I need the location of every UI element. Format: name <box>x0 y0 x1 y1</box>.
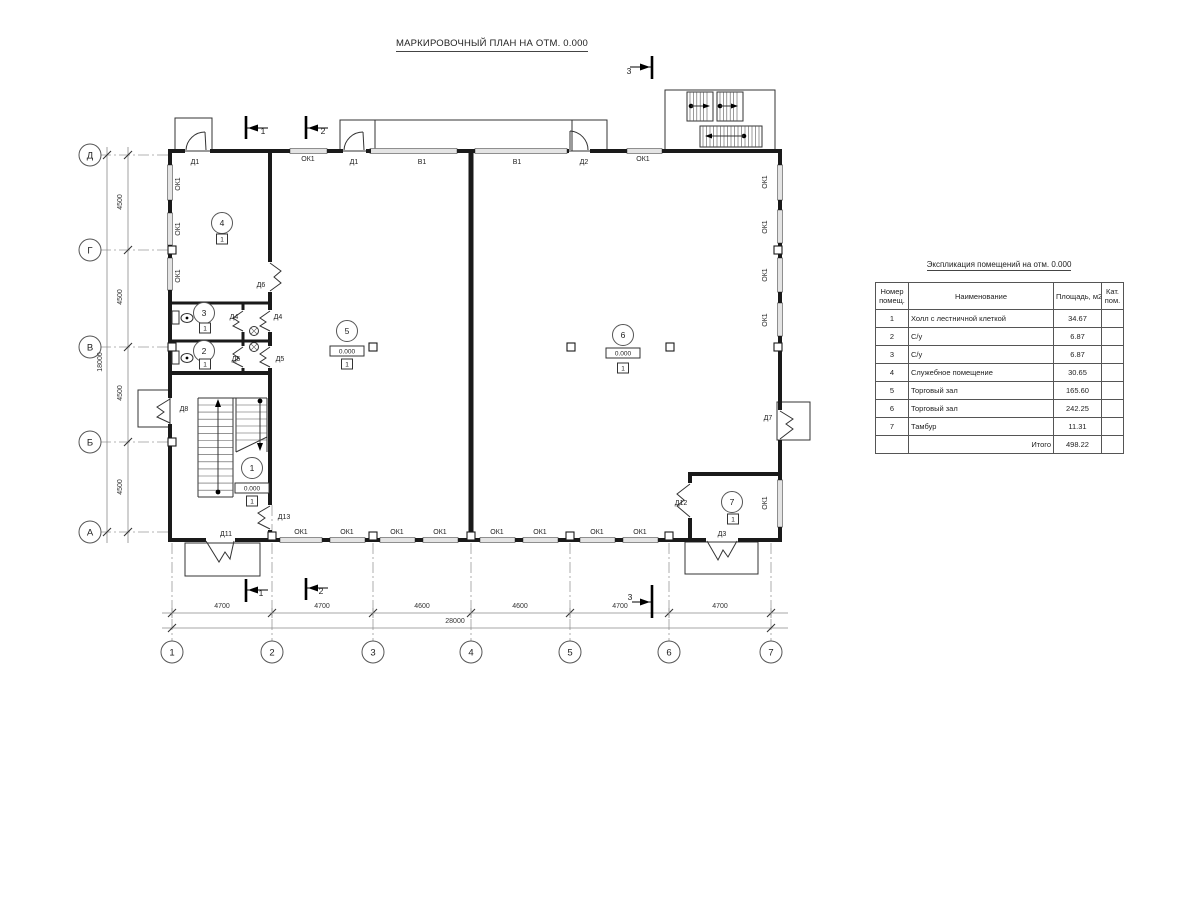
floor-marker: 1 <box>220 237 224 244</box>
spec-cell-name: Служебное помещение <box>909 364 1054 382</box>
dim-value: 4500 <box>117 385 124 401</box>
opening-label: ОК1 <box>294 529 308 536</box>
section-number: 2 <box>321 126 326 136</box>
opening-label: Д5 <box>232 356 241 363</box>
elevation-value: 0.000 <box>615 351 632 358</box>
section-number: 3 <box>627 66 632 76</box>
section-number: 1 <box>259 588 264 598</box>
opening-label: Д6 <box>257 282 266 289</box>
specification-table: Номерпомещ. Наименование Площадь, м2 Кат… <box>875 282 1124 454</box>
spec-row: 1Холл с лестничной клеткой34.67 <box>876 310 1124 328</box>
opening-label: ОК1 <box>175 177 182 191</box>
spec-cell-num: 6 <box>876 400 909 418</box>
opening-label: ОК1 <box>340 529 354 536</box>
spec-cell-num: 4 <box>876 364 909 382</box>
floor-marker: 1 <box>345 362 349 369</box>
exterior-stair <box>665 90 775 150</box>
spec-row: 6Торговый зал242.25 <box>876 400 1124 418</box>
spec-cell-area: 6.87 <box>1054 328 1102 346</box>
room-number: 2 <box>202 346 207 356</box>
elevation-value: 0.000 <box>244 486 261 493</box>
opening-label: Д5 <box>276 356 285 363</box>
columns <box>168 246 782 540</box>
column <box>369 532 377 540</box>
opening-label: ОК1 <box>590 529 604 536</box>
porches <box>138 118 810 576</box>
axis-letter: В <box>87 343 93 354</box>
spec-header-row: Номерпомещ. Наименование Площадь, м2 Кат… <box>876 283 1124 310</box>
spec-row: 4Служебное помещение30.65 <box>876 364 1124 382</box>
opening-label: Д2 <box>580 159 589 166</box>
axis-letter: А <box>87 528 94 539</box>
spec-title: Экспликация помещений на отм. 0.000 <box>875 260 1123 269</box>
opening-label: Д4 <box>274 314 283 321</box>
column <box>567 343 575 351</box>
opening-label: Д11 <box>220 531 232 538</box>
dim-value: 4600 <box>414 603 430 610</box>
spec-row: 2С/у6.87 <box>876 328 1124 346</box>
grid-number: 7 <box>768 648 773 659</box>
spec-total-cell: Итого <box>909 436 1054 454</box>
floor-marker: 1 <box>731 517 735 524</box>
dim-value: 4700 <box>314 603 330 610</box>
spec-cell-num: 3 <box>876 346 909 364</box>
spec-row: 5Торговый зал165.60 <box>876 382 1124 400</box>
opening-label: Д1 <box>191 159 200 166</box>
elevation-value: 0.000 <box>339 349 356 356</box>
opening-label: ОК1 <box>490 529 504 536</box>
spec-header-name: Наименование <box>909 283 1054 310</box>
column <box>467 532 475 540</box>
room-number: 7 <box>730 497 735 507</box>
spec-cell-area: 242.25 <box>1054 400 1102 418</box>
spec-row: 3С/у6.87 <box>876 346 1124 364</box>
opening-label: Д8 <box>180 406 189 413</box>
stair <box>198 398 267 497</box>
column <box>566 532 574 540</box>
spec-cell-num: 1 <box>876 310 909 328</box>
spec-cell-name: Тамбур <box>909 418 1054 436</box>
opening-label: ОК1 <box>762 220 769 234</box>
dim-value: 4500 <box>117 479 124 495</box>
dim-total: 28000 <box>445 618 465 625</box>
room-number: 1 <box>250 463 255 473</box>
dim-total: 18000 <box>97 352 104 372</box>
dim-value: 4600 <box>512 603 528 610</box>
spec-cell-num: 7 <box>876 418 909 436</box>
floor-marker: 1 <box>250 499 254 506</box>
spec-cell-cat <box>1102 364 1124 382</box>
drawing-sheet: МАРКИРОВОЧНЫЙ ПЛАН НА ОТМ. 0.000 <box>0 0 1200 900</box>
dim-value: 4700 <box>612 603 628 610</box>
column <box>369 343 377 351</box>
grid-number: 3 <box>370 648 375 659</box>
opening-label: Д4 <box>230 314 239 321</box>
axis-letter: Г <box>87 246 92 257</box>
column <box>168 246 176 254</box>
dim-value: 4700 <box>712 603 728 610</box>
spec-total-row: Итого498.22 <box>876 436 1124 454</box>
spec-total-cell: 498.22 <box>1054 436 1102 454</box>
opening-label: ОК1 <box>762 313 769 327</box>
spec-header-area: Площадь, м2 <box>1054 283 1102 310</box>
spec-cell-num: 5 <box>876 382 909 400</box>
spec-cell-area: 165.60 <box>1054 382 1102 400</box>
spec-cell-area: 6.87 <box>1054 346 1102 364</box>
spec-cell-area: 34.67 <box>1054 310 1102 328</box>
spec-header-num: Номерпомещ. <box>876 283 909 310</box>
grid-number: 5 <box>567 648 572 659</box>
spec-cell-area: 30.65 <box>1054 364 1102 382</box>
axis-letter: Б <box>87 438 93 449</box>
grid-number: 1 <box>169 648 174 659</box>
spec-cell-name: Холл с лестничной клеткой <box>909 310 1054 328</box>
floor-marker: 1 <box>621 366 625 373</box>
spec-total-cell <box>1102 436 1124 454</box>
spec-total-cell <box>876 436 909 454</box>
column <box>666 343 674 351</box>
sanitary-fixtures <box>172 311 259 364</box>
spec-cell-name: Торговый зал <box>909 400 1054 418</box>
spec-cell-num: 2 <box>876 328 909 346</box>
opening-label: ОК1 <box>762 175 769 189</box>
spec-cell-cat <box>1102 382 1124 400</box>
spec-cell-name: С/у <box>909 346 1054 364</box>
opening-label: Д1 <box>350 159 359 166</box>
axis-letter: Д <box>87 151 94 162</box>
spec-header-cat: Кат.пом. <box>1102 283 1124 310</box>
opening-label: ОК1 <box>301 156 315 163</box>
grid-number: 4 <box>468 648 473 659</box>
column <box>665 532 673 540</box>
spec-cell-cat <box>1102 310 1124 328</box>
column <box>774 343 782 351</box>
opening-label: Д12 <box>675 500 688 507</box>
section-number: 2 <box>319 586 324 596</box>
opening-label: ОК1 <box>636 156 650 163</box>
opening-label: ОК1 <box>433 529 447 536</box>
section-number: 3 <box>628 592 633 602</box>
opening-label: ОК1 <box>175 222 182 236</box>
spec-cell-name: С/у <box>909 328 1054 346</box>
opening-label: В1 <box>418 159 427 166</box>
grid-number: 2 <box>269 648 274 659</box>
spec-cell-cat <box>1102 418 1124 436</box>
spec-row: 7Тамбур11.31 <box>876 418 1124 436</box>
room-number: 6 <box>621 330 626 340</box>
opening-label: Д7 <box>764 415 773 422</box>
spec-cell-cat <box>1102 328 1124 346</box>
spec-cell-cat <box>1102 400 1124 418</box>
opening-label: В1 <box>513 159 522 166</box>
opening-label: ОК1 <box>762 268 769 282</box>
opening-label: ОК1 <box>762 496 769 510</box>
opening-label: ОК1 <box>633 529 647 536</box>
opening-label: ОК1 <box>390 529 404 536</box>
dim-value: 4500 <box>117 194 124 210</box>
floor-marker: 1 <box>203 362 207 369</box>
column <box>774 246 782 254</box>
grid-number: 6 <box>666 648 671 659</box>
opening-label: Д3 <box>718 531 727 538</box>
labels-layer: Д1ОК1Д1В1В1Д2ОК1ОК1ОК1ОК1ОК1ОК1ОК1ОК1ОК1… <box>79 66 782 663</box>
opening-label: ОК1 <box>175 269 182 283</box>
floor-marker: 1 <box>203 326 207 333</box>
column <box>168 438 176 446</box>
opening-label: ОК1 <box>533 529 547 536</box>
dim-value: 4500 <box>117 289 124 305</box>
room-number: 4 <box>220 218 225 228</box>
spec-cell-area: 11.31 <box>1054 418 1102 436</box>
spec-cell-name: Торговый зал <box>909 382 1054 400</box>
room-number: 5 <box>345 326 350 336</box>
spec-cell-cat <box>1102 346 1124 364</box>
dim-value: 4700 <box>214 603 230 610</box>
column <box>168 343 176 351</box>
column <box>268 532 276 540</box>
room-number: 3 <box>202 308 207 318</box>
section-number: 1 <box>261 126 266 136</box>
opening-label: Д13 <box>278 514 291 521</box>
